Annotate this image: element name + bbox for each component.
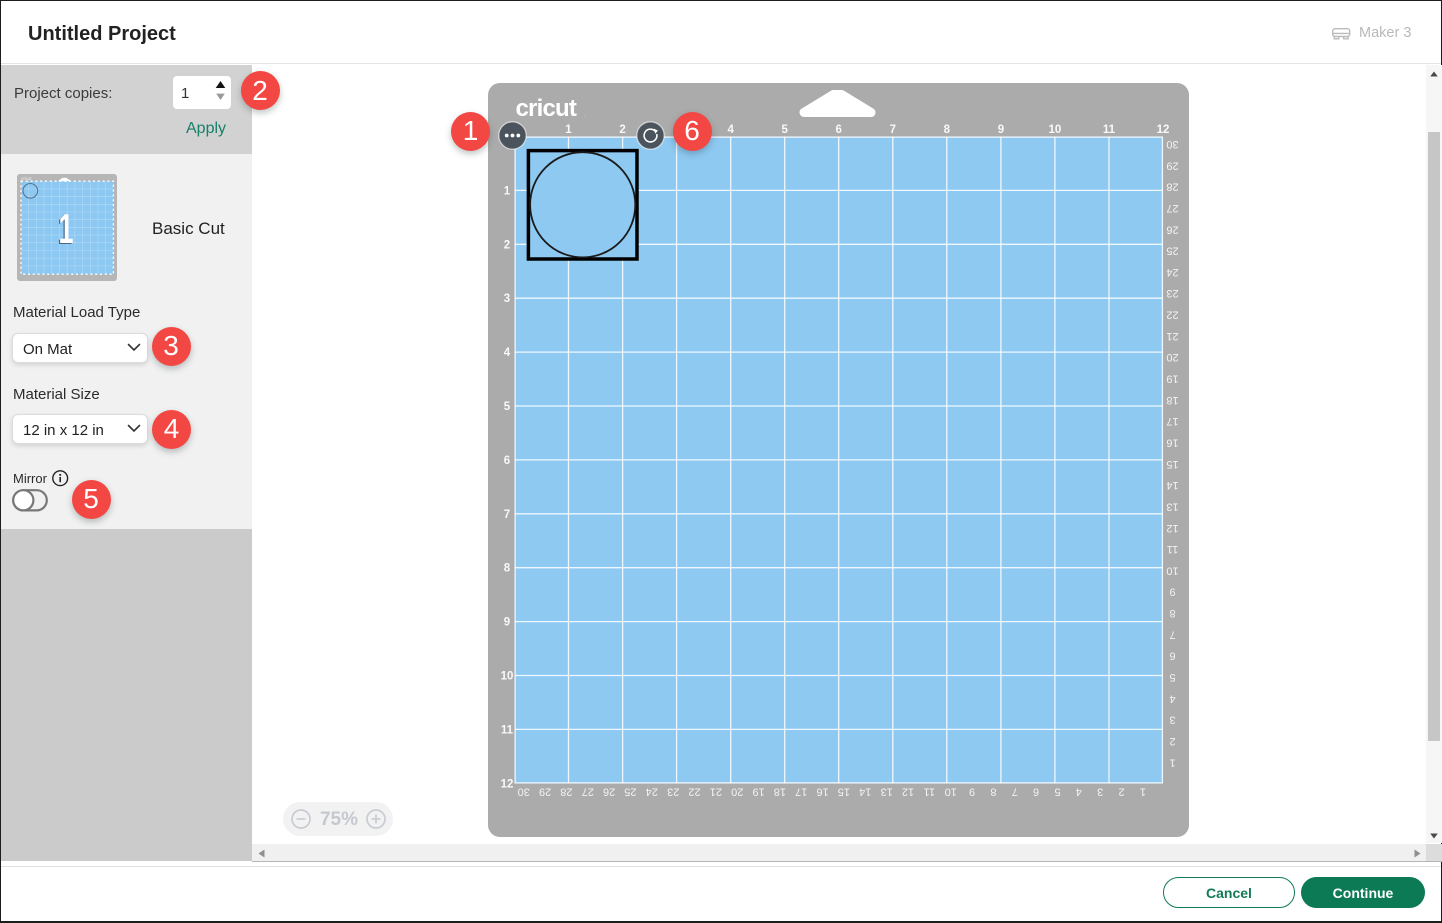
svg-text:29: 29 (1166, 159, 1178, 171)
svg-text:17: 17 (1166, 415, 1178, 427)
svg-text:8: 8 (990, 786, 996, 798)
svg-text:19: 19 (1166, 373, 1178, 385)
svg-text:2: 2 (1118, 786, 1124, 798)
svg-text:1: 1 (59, 206, 74, 252)
svg-text:14: 14 (859, 786, 871, 798)
svg-text:5: 5 (1169, 671, 1175, 683)
svg-text:30: 30 (518, 786, 530, 798)
svg-text:21: 21 (710, 786, 722, 798)
svg-text:25: 25 (1166, 245, 1178, 257)
svg-text:10: 10 (1049, 124, 1062, 136)
svg-text:10: 10 (501, 671, 514, 683)
svg-text:14: 14 (1166, 479, 1178, 491)
svg-text:27: 27 (1166, 202, 1178, 214)
svg-text:5: 5 (1054, 786, 1060, 798)
svg-text:27: 27 (582, 786, 594, 798)
svg-text:1: 1 (565, 124, 572, 136)
svg-text:2: 2 (504, 239, 510, 251)
svg-text:2: 2 (1169, 735, 1175, 747)
svg-text:3: 3 (1169, 714, 1175, 726)
svg-text:28: 28 (1166, 181, 1178, 193)
svg-text:23: 23 (667, 786, 679, 798)
svg-text:22: 22 (688, 786, 700, 798)
svg-text:2: 2 (619, 124, 625, 136)
svg-text:8: 8 (504, 563, 511, 575)
svg-text:12: 12 (501, 778, 514, 790)
svg-text:11: 11 (924, 786, 935, 798)
svg-text:9: 9 (998, 124, 1004, 136)
svg-text:9: 9 (504, 617, 510, 629)
svg-text:24: 24 (646, 786, 658, 798)
svg-text:22: 22 (1166, 309, 1178, 321)
svg-text:21: 21 (1166, 330, 1178, 342)
svg-text:26: 26 (603, 786, 615, 798)
svg-text:20: 20 (1166, 351, 1178, 363)
svg-text:1: 1 (504, 185, 511, 197)
svg-text:18: 18 (1166, 394, 1178, 406)
svg-text:26: 26 (1166, 223, 1178, 235)
svg-text:6: 6 (504, 455, 510, 467)
svg-text:6: 6 (1033, 786, 1039, 798)
svg-text:8: 8 (1169, 607, 1175, 619)
svg-text:8: 8 (944, 124, 951, 136)
svg-text:12: 12 (902, 786, 914, 798)
svg-text:17: 17 (795, 786, 807, 798)
svg-text:9: 9 (1169, 586, 1175, 598)
svg-text:5: 5 (504, 401, 511, 413)
svg-text:13: 13 (1166, 500, 1178, 512)
svg-text:11: 11 (1103, 124, 1116, 136)
svg-text:10: 10 (945, 786, 957, 798)
svg-text:15: 15 (838, 786, 850, 798)
svg-text:30: 30 (1166, 138, 1178, 150)
svg-text:6: 6 (1169, 650, 1175, 662)
svg-text:1: 1 (1169, 756, 1175, 768)
svg-text:15: 15 (1166, 458, 1178, 470)
svg-text:7: 7 (890, 124, 896, 136)
svg-text:25: 25 (624, 786, 636, 798)
svg-text:4: 4 (1076, 786, 1082, 798)
svg-text:12: 12 (1157, 124, 1170, 136)
svg-text:13: 13 (881, 786, 893, 798)
svg-text:10: 10 (1166, 564, 1178, 576)
svg-text:cricut: cricut (516, 95, 577, 122)
svg-text:1: 1 (1140, 786, 1146, 798)
svg-text:11: 11 (501, 724, 514, 736)
svg-text:5: 5 (781, 124, 788, 136)
svg-text:9: 9 (969, 786, 975, 798)
svg-text:.: . (584, 111, 586, 118)
svg-text:12: 12 (1166, 522, 1178, 534)
svg-text:19: 19 (752, 786, 764, 798)
svg-text:6: 6 (835, 124, 841, 136)
svg-text:4: 4 (504, 347, 511, 359)
svg-text:7: 7 (1012, 786, 1018, 798)
svg-text:3: 3 (504, 293, 510, 305)
svg-text:20: 20 (731, 786, 743, 798)
svg-text:29: 29 (539, 786, 551, 798)
svg-text:3: 3 (1097, 786, 1103, 798)
svg-text:24: 24 (1166, 266, 1178, 278)
svg-text:cricut: cricut (21, 176, 32, 181)
svg-text:18: 18 (774, 786, 786, 798)
svg-text:23: 23 (1166, 287, 1178, 299)
svg-text:7: 7 (504, 509, 510, 521)
svg-text:4: 4 (727, 124, 734, 136)
svg-text:16: 16 (1166, 437, 1178, 449)
svg-text:28: 28 (560, 786, 572, 798)
svg-text:7: 7 (1169, 628, 1175, 640)
svg-text:16: 16 (816, 786, 828, 798)
svg-text:11: 11 (1167, 543, 1178, 555)
svg-text:4: 4 (1169, 692, 1175, 704)
